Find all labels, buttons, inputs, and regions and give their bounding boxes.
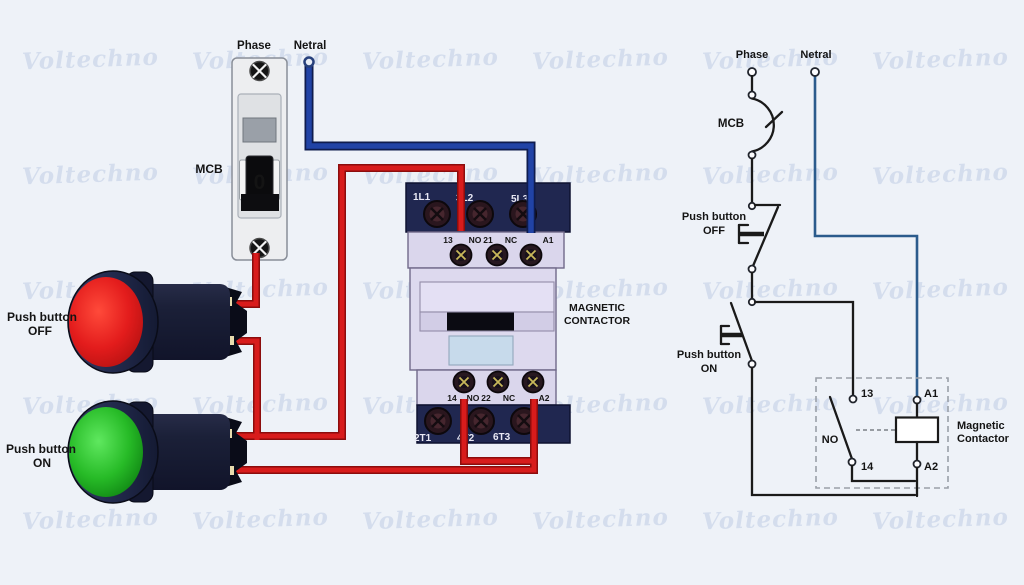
schematic-mcb-label: MCB (718, 118, 744, 130)
aux-label-a1: A1 (543, 235, 554, 245)
aux-label-22: 22 (481, 393, 491, 403)
schematic-off-label-line2: OFF (703, 225, 725, 237)
wiring-diagram-page: VoltechnoVoltechnoVoltechnoVoltechnoVolt… (0, 0, 1024, 585)
schematic-phase-label: Phase (736, 49, 768, 61)
mcb-label-window (243, 118, 276, 142)
schematic-label-14: 14 (861, 461, 874, 473)
on-button-cap (69, 407, 143, 497)
mcb-toggle-position: 0 (254, 171, 266, 194)
aux-label-nc-bottom: NC (503, 393, 515, 403)
schematic-on-label-line1: Push button (677, 349, 741, 361)
schematic-phase-pin (748, 68, 756, 76)
schematic-netral-label: Netral (800, 49, 831, 61)
contactor-power-screws-bottom (425, 408, 537, 434)
terminal-label-6t3: 6T3 (493, 432, 511, 443)
contactor-nameplate (449, 336, 513, 365)
on-push-button-device (68, 401, 247, 503)
contactor-aux-screws-top (451, 245, 542, 266)
netral-pin (305, 58, 314, 67)
schematic-label-a2: A2 (924, 461, 938, 473)
off-button-cap (69, 277, 143, 367)
mcb-toggle-bar (241, 194, 279, 211)
off-button-label-line1: Push button (7, 310, 77, 324)
contactor-power-screws-top (424, 201, 536, 227)
mcb-top-screw (250, 62, 269, 81)
terminal-label-1l1: 1L1 (413, 192, 431, 203)
diagram-canvas: 0 1L1 3L2 5L3 13 NO 21 NC A1 (0, 0, 1024, 585)
on-button-label-line2: ON (33, 456, 51, 470)
contactor-face-panel (420, 282, 554, 312)
schematic-on-label-line2: ON (701, 363, 718, 375)
schematic-label-a1: A1 (924, 388, 938, 400)
aux-label-14: 14 (447, 393, 457, 403)
magnetic-contactor-device: 1L1 3L2 5L3 13 NO 21 NC A1 (406, 183, 570, 444)
schematic-netral-pin (811, 68, 819, 76)
mcb-label: MCB (195, 162, 223, 176)
mcb-device: 0 (232, 58, 287, 260)
terminal-label-2t1: 2T1 (414, 433, 432, 444)
schematic-label-13: 13 (861, 388, 873, 400)
off-button-label-line2: OFF (28, 324, 52, 338)
netral-label: Netral (294, 40, 327, 52)
schematic-contactor-label-line2: Contactor (957, 433, 1010, 445)
on-button-label-line1: Push button (6, 442, 76, 456)
schematic-contactor-label-line1: Magnetic (957, 420, 1005, 432)
schematic-label-no: NO (822, 434, 839, 446)
aux-label-nc-top: NC (505, 235, 517, 245)
schematic-branch-to-13 (755, 302, 853, 395)
contactor-label-line2: CONTACTOR (564, 315, 631, 327)
schematic-mcb-symbol (749, 92, 783, 159)
contactor-aux-screws-bottom (454, 372, 544, 393)
contactor-label-line1: MAGNETIC (569, 302, 625, 314)
contactor-indicator-window (447, 313, 514, 331)
schematic-neutral-line (815, 76, 917, 396)
schematic-off-label-line1: Push button (682, 211, 746, 223)
aux-label-no-top: NO (469, 235, 482, 245)
off-plunger-icon (739, 225, 764, 243)
coil-box (896, 418, 938, 443)
control-schematic: Phase Netral MCB Push button OFF Push bu… (677, 49, 1010, 496)
phase-label: Phase (237, 40, 271, 52)
schematic-on-to-coil-line (752, 368, 915, 496)
aux-label-no-bottom: NO (467, 393, 480, 403)
off-push-button-device (68, 271, 247, 373)
aux-label-21: 21 (483, 235, 493, 245)
aux-label-a2: A2 (539, 393, 550, 403)
aux-label-13: 13 (443, 235, 453, 245)
